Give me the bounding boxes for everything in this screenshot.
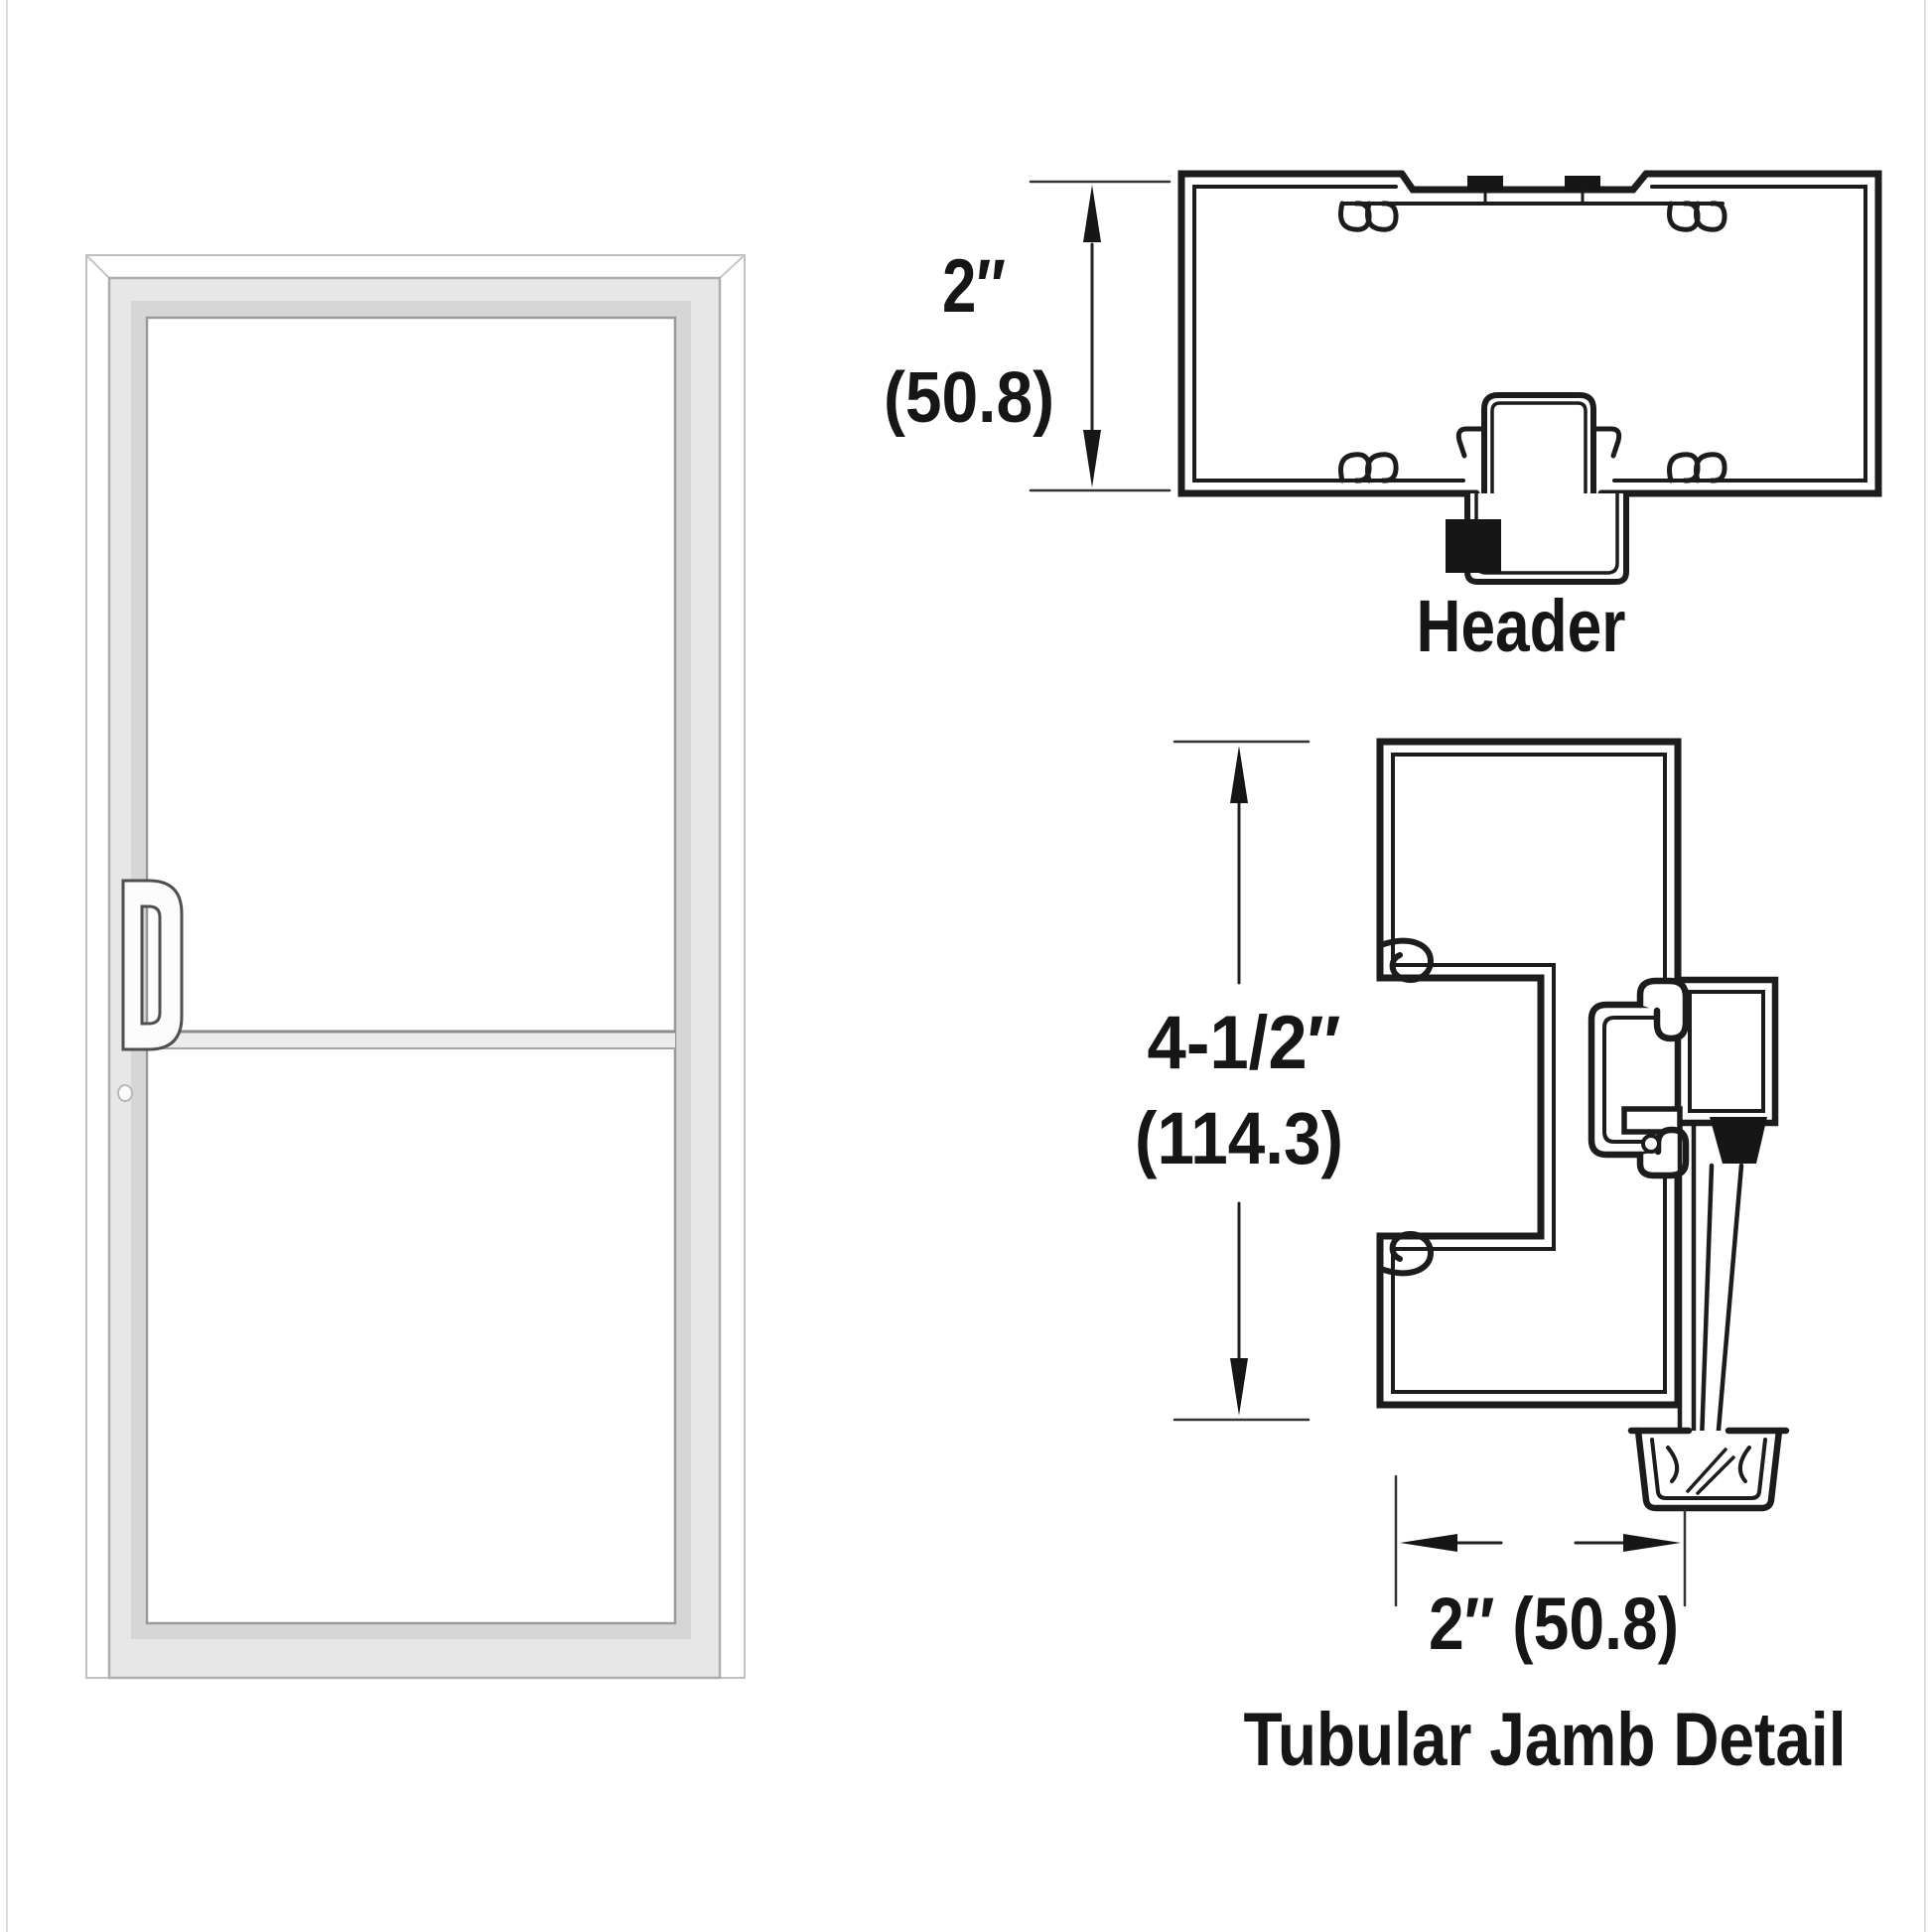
arrow-left-icon [1400,1534,1457,1552]
door-mid-rail [147,1031,675,1049]
jamb-height-dimension: 4-1/2″ (114.3) [1135,742,1343,1420]
door-keyline-corner-right [720,255,745,278]
screw-hole [1643,1136,1659,1152]
arrow-up-icon [1083,185,1101,242]
door-keyline-corner-left [86,255,109,278]
arrow-right-icon [1623,1534,1681,1552]
header-section: 2″ (50.8) [884,174,1878,667]
header-label: Header [1417,585,1626,667]
lock-cylinder [118,1085,132,1101]
jamb-width-dim: 2″ (50.8) [1429,1583,1679,1665]
header-dimension: 2″ (50.8) [884,182,1170,490]
product-diagram-page: 2″ (50.8) [0,0,1932,1932]
sweep-fins [1702,1166,1741,1442]
jamb-height-dim-imperial: 4-1/2″ [1148,1001,1341,1085]
arrow-up-icon [1230,746,1248,803]
header-dim-metric: (50.8) [884,358,1054,438]
arrow-down-icon [1083,430,1101,487]
stile-tube [1678,980,1775,1123]
jamb-height-dim-metric: (114.3) [1135,1097,1343,1179]
arrow-down-icon [1230,1358,1248,1416]
header-tab-left [1467,176,1503,191]
stop-weatherstrip-block [1446,519,1501,573]
sweep-retainer-cup [1631,1431,1786,1508]
header-dim-imperial: 2″ [942,244,1006,329]
door-glass [147,318,675,1623]
jamb-width-dimension: 2″ (50.8) [1396,1476,1685,1665]
header-tab-right [1565,176,1600,191]
jamb-label: Tubular Jamb Detail [1244,1698,1847,1782]
jamb-section: 4-1/2″ (114.3) [1135,742,1847,1782]
door-elevation [86,255,745,1678]
diagram-canvas: 2″ (50.8) [0,0,1932,1932]
stile-weather-wedge [1710,1117,1767,1164]
